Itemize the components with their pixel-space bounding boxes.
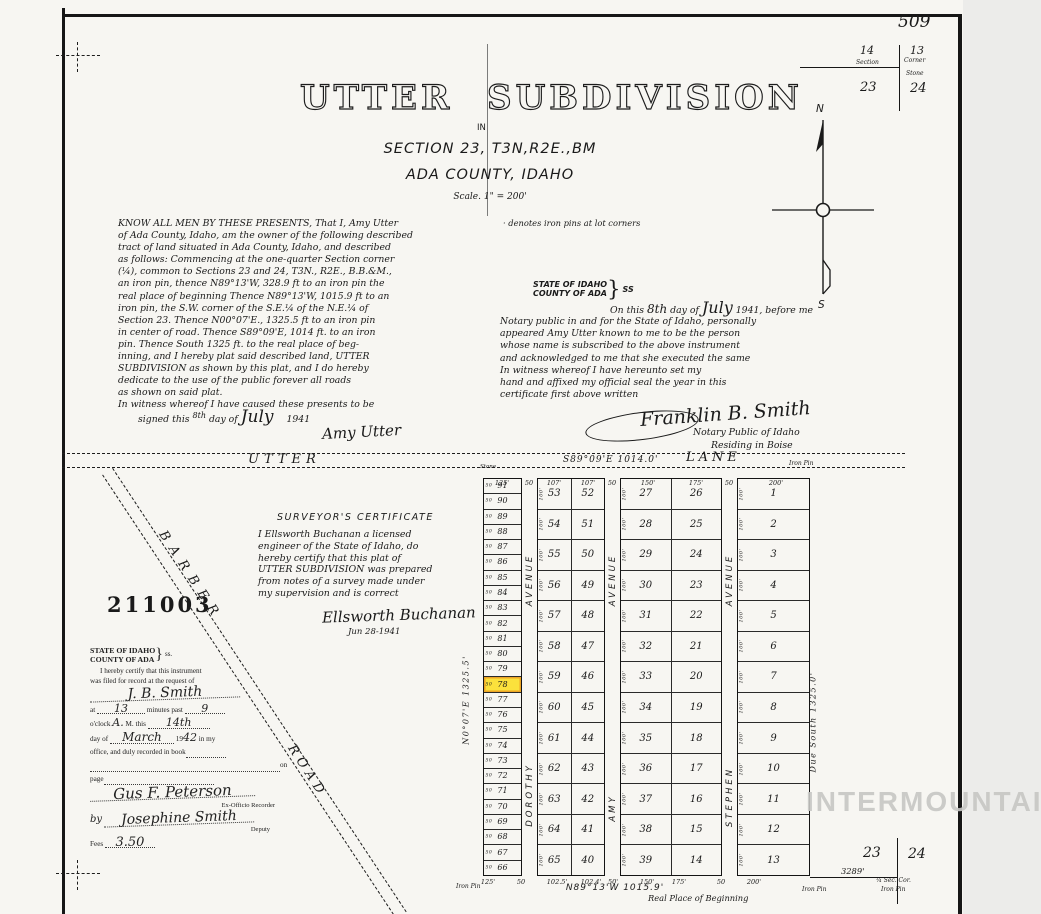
lot-number: 34 xyxy=(639,702,652,713)
lot-number: 18 xyxy=(690,733,703,744)
lot-row: 5076 xyxy=(484,708,521,723)
lot-number: 50 xyxy=(581,549,594,560)
lot-cell: 100'63 xyxy=(538,784,572,814)
lot-cell: 100'65 xyxy=(538,845,572,875)
lot-cell: 100'61 xyxy=(538,723,572,753)
lot-cell: 100'29 xyxy=(621,540,672,570)
lot-cell: 19 xyxy=(672,693,722,723)
lot-cell: 100'62 xyxy=(538,754,572,784)
lot-number: 56 xyxy=(548,580,561,591)
plat-grid: 5091509050895088508750865085508450835082… xyxy=(0,0,1041,914)
lot-cell: 100'56 xyxy=(538,571,572,601)
lot-depth-label: 100' xyxy=(738,487,744,500)
lot-row: 100'3518 xyxy=(621,723,721,754)
lot-cell: 100'31 xyxy=(621,601,672,631)
lot-number: 41 xyxy=(581,824,594,835)
lot-cell: 5082 xyxy=(484,616,521,630)
lot-number: 1 xyxy=(770,488,776,499)
lot-number: 51 xyxy=(581,519,594,530)
lot-number: 23 xyxy=(690,580,703,591)
block-b: 100'5352100'5451100'5550100'5649100'5748… xyxy=(537,478,605,876)
lot-cell: 100'37 xyxy=(621,784,672,814)
lot-row: 100'9 xyxy=(738,723,809,754)
avenue-name-stephen: STEPHEN xyxy=(725,767,735,827)
lot-row: 100'5451 xyxy=(538,510,604,541)
lot-cell: 100'9 xyxy=(738,723,809,753)
lot-cell: 5074 xyxy=(484,739,521,753)
lot-cell: 43 xyxy=(572,754,605,784)
lot-depth-label: 100' xyxy=(738,548,744,561)
lot-number: 63 xyxy=(548,794,561,805)
lot-number: 36 xyxy=(639,763,652,774)
lot-number: 35 xyxy=(639,733,652,744)
lot-cell: 50 xyxy=(572,540,605,570)
lot-row: 100'5748 xyxy=(538,601,604,632)
lot-row: 100'3023 xyxy=(621,571,721,602)
lot-number: 24 xyxy=(690,549,703,560)
lot-number: 76 xyxy=(497,711,507,719)
lot-row: 5089 xyxy=(484,510,521,525)
lot-cell: 100'8 xyxy=(738,693,809,723)
lot-depth-label: 100' xyxy=(538,487,544,500)
lot-number: 71 xyxy=(497,787,507,795)
lot-cell: 100'12 xyxy=(738,815,809,845)
lot-cell: 100'55 xyxy=(538,540,572,570)
lot-cell: 100'4 xyxy=(738,571,809,601)
lot-cell: 100'10 xyxy=(738,754,809,784)
lot-number: 11 xyxy=(767,794,780,805)
lot-depth-label: 100' xyxy=(621,487,627,500)
lot-cell: 20 xyxy=(672,662,722,692)
lot-number: 44 xyxy=(581,733,594,744)
lot-row: 100'4 xyxy=(738,571,809,602)
block-d: 100'1100'2100'3100'4100'5100'6100'7100'8… xyxy=(737,478,810,876)
lot-cell: 5071 xyxy=(484,784,521,798)
lot-cell: 5066 xyxy=(484,861,521,875)
lot-cell: 100'57 xyxy=(538,601,572,631)
lot-row: 5088 xyxy=(484,525,521,540)
lot-number: 80 xyxy=(497,650,507,658)
lot-number: 90 xyxy=(497,497,507,505)
lot-number: 52 xyxy=(581,488,594,499)
lot-cell: 5090 xyxy=(484,494,521,508)
lot-cell: 5079 xyxy=(484,662,521,676)
lot-depth-label: 50 xyxy=(486,682,493,687)
lot-depth-label: 100' xyxy=(538,670,544,683)
lot-number: 20 xyxy=(690,671,703,682)
lot-depth-label: 100' xyxy=(738,854,744,867)
lot-cell-highlighted: 5078 xyxy=(484,677,521,691)
lot-depth-label: 100' xyxy=(738,518,744,531)
lot-row: 100'3716 xyxy=(621,784,721,815)
lot-row: 5078 xyxy=(484,677,521,692)
lot-number: 17 xyxy=(690,763,703,774)
lot-number: 12 xyxy=(767,824,780,835)
lot-number: 33 xyxy=(639,671,652,682)
lot-depth-label: 100' xyxy=(538,579,544,592)
lot-row: 100'3122 xyxy=(621,601,721,632)
lot-cell: 41 xyxy=(572,815,605,845)
lot-depth-label: 100' xyxy=(621,670,627,683)
lot-row: 5085 xyxy=(484,571,521,586)
lot-depth-label: 100' xyxy=(738,701,744,714)
lot-number: 2 xyxy=(770,519,776,530)
lot-number: 48 xyxy=(581,610,594,621)
lot-depth-label: 50 xyxy=(486,835,493,840)
avenue-suffix-amy: AVENUE xyxy=(608,554,618,607)
lot-cell: 5077 xyxy=(484,693,521,707)
lot-number: 25 xyxy=(690,519,703,530)
lot-depth-label: 100' xyxy=(621,823,627,836)
lot-row: 100'10 xyxy=(738,754,809,785)
lot-depth-label: 100' xyxy=(621,518,627,531)
avenue-name-amy: AMY xyxy=(608,794,618,821)
lot-depth-label: 100' xyxy=(538,793,544,806)
lot-number: 77 xyxy=(497,696,507,704)
lot-row: 100'5 xyxy=(738,601,809,632)
lot-row: 5075 xyxy=(484,723,521,738)
lot-row: 100'2726 xyxy=(621,479,721,510)
lot-row: 5071 xyxy=(484,784,521,799)
section-number-24: 24 xyxy=(908,846,926,862)
lot-number: 58 xyxy=(548,641,561,652)
lot-row: 100'5550 xyxy=(538,540,604,571)
lot-row: 100'3617 xyxy=(621,754,721,785)
lot-depth-label: 100' xyxy=(538,854,544,867)
lot-number: 15 xyxy=(690,824,703,835)
lot-row: 5082 xyxy=(484,616,521,631)
lot-cell: 24 xyxy=(672,540,722,570)
lot-cell: 49 xyxy=(572,571,605,601)
lot-cell: 100'5 xyxy=(738,601,809,631)
lot-row: 100'3815 xyxy=(621,815,721,846)
lot-number: 27 xyxy=(639,488,652,499)
dimension-label: 150' xyxy=(641,479,655,487)
lot-cell: 100'58 xyxy=(538,632,572,662)
lot-row: 100'3914 xyxy=(621,845,721,875)
lot-row: 100'5946 xyxy=(538,662,604,693)
lot-cell: 100'36 xyxy=(621,754,672,784)
lot-row: 5069 xyxy=(484,815,521,830)
lot-row: 5068 xyxy=(484,830,521,845)
south-boundary-bearing: N89°13'W 1015.9' xyxy=(540,883,690,893)
lot-row: 100'8 xyxy=(738,693,809,724)
lot-depth-label: 100' xyxy=(621,854,627,867)
lot-number: 78 xyxy=(497,681,507,689)
lot-cell: 100'30 xyxy=(621,571,672,601)
lot-row: 5067 xyxy=(484,845,521,860)
lot-cell: 100'2 xyxy=(738,510,809,540)
lot-depth-label: 100' xyxy=(621,701,627,714)
lot-row: 5066 xyxy=(484,861,521,875)
lot-row: 100'5649 xyxy=(538,571,604,602)
lot-cell: 5087 xyxy=(484,540,521,554)
lot-number: 28 xyxy=(639,519,652,530)
lot-depth-label: 100' xyxy=(738,670,744,683)
lot-number: 6 xyxy=(770,641,776,652)
lot-depth-label: 50 xyxy=(486,850,493,855)
lot-depth-label: 100' xyxy=(738,823,744,836)
lot-number: 5 xyxy=(770,610,776,621)
lot-depth-label: 50 xyxy=(486,529,493,534)
lot-cell: 100'32 xyxy=(621,632,672,662)
east-boundary-bearing: Due South 1325.0' xyxy=(809,672,818,773)
lot-depth-label: 100' xyxy=(621,579,627,592)
lot-row: 100'6144 xyxy=(538,723,604,754)
lot-number: 30 xyxy=(639,580,652,591)
lot-number: 14 xyxy=(690,855,703,866)
lot-cell: 100'34 xyxy=(621,693,672,723)
lot-cell: 5067 xyxy=(484,845,521,859)
lot-cell: 44 xyxy=(572,723,605,753)
lot-depth-label: 100' xyxy=(738,640,744,653)
lot-number: 73 xyxy=(497,757,507,765)
lot-number: 83 xyxy=(497,604,507,612)
lot-cell: 5069 xyxy=(484,815,521,829)
lot-depth-label: 100' xyxy=(538,701,544,714)
lot-depth-label: 50 xyxy=(486,667,493,672)
lot-depth-label: 50 xyxy=(486,606,493,611)
lot-number: 70 xyxy=(497,803,507,811)
lot-depth-label: 100' xyxy=(738,762,744,775)
lot-number: 40 xyxy=(581,855,594,866)
lot-depth-label: 50 xyxy=(486,865,493,870)
lot-number: 47 xyxy=(581,641,594,652)
lot-depth-label: 100' xyxy=(621,609,627,622)
lot-number: 7 xyxy=(770,671,776,682)
lot-row: 100'2 xyxy=(738,510,809,541)
lot-depth-label: 50 xyxy=(486,804,493,809)
lot-row: 5083 xyxy=(484,601,521,616)
lot-number: 22 xyxy=(690,610,703,621)
lot-row: 100'6540 xyxy=(538,845,604,875)
lot-depth-label: 50 xyxy=(486,713,493,718)
lot-depth-label: 100' xyxy=(538,518,544,531)
lot-depth-label: 50 xyxy=(486,636,493,641)
lot-depth-label: 50 xyxy=(486,774,493,779)
lot-cell: 5075 xyxy=(484,723,521,737)
lot-number: 42 xyxy=(581,794,594,805)
lot-depth-label: 50 xyxy=(486,621,493,626)
lot-cell: 100'64 xyxy=(538,815,572,845)
lot-row: 5070 xyxy=(484,800,521,815)
lot-cell: 25 xyxy=(672,510,722,540)
lot-number: 79 xyxy=(497,665,507,673)
lot-cell: 5076 xyxy=(484,708,521,722)
dimension-label: 50 xyxy=(725,479,733,487)
lot-cell: 5085 xyxy=(484,571,521,585)
lot-number: 57 xyxy=(548,610,561,621)
dimension-label: 107' xyxy=(581,479,595,487)
lot-number: 59 xyxy=(548,671,561,682)
lot-number: 54 xyxy=(548,519,561,530)
lot-row: 100'3320 xyxy=(621,662,721,693)
lot-row: 100'2825 xyxy=(621,510,721,541)
lot-depth-label: 50 xyxy=(486,514,493,519)
lot-cell: 5088 xyxy=(484,525,521,539)
lot-number: 9 xyxy=(770,733,776,744)
lot-row: 100'5847 xyxy=(538,632,604,663)
lot-depth-label: 100' xyxy=(538,762,544,775)
lot-number: 87 xyxy=(497,543,507,551)
se-iron-pin-label: Iron Pin xyxy=(802,886,826,893)
lot-cell: 100'60 xyxy=(538,693,572,723)
lot-cell: 18 xyxy=(672,723,722,753)
lot-depth-label: 50 xyxy=(486,758,493,763)
lot-row: 100'6441 xyxy=(538,815,604,846)
lot-number: 8 xyxy=(770,702,776,713)
lot-cell: 5080 xyxy=(484,647,521,661)
lot-number: 81 xyxy=(497,635,507,643)
lot-cell: 21 xyxy=(672,632,722,662)
lot-number: 10 xyxy=(767,763,780,774)
lot-row: 100'3 xyxy=(738,540,809,571)
lot-number: 62 xyxy=(548,763,561,774)
lot-cell: 100'3 xyxy=(738,540,809,570)
lot-depth-label: 50 xyxy=(486,560,493,565)
plat-document-page: 509 14 13 Section Corner Stone 23 24 UTT… xyxy=(0,0,1041,914)
lot-number: 4 xyxy=(770,580,776,591)
dimension-label: 50 xyxy=(717,878,725,886)
lot-depth-label: 50 xyxy=(486,652,493,657)
lot-cell: 5072 xyxy=(484,769,521,783)
lot-cell: 100'13 xyxy=(738,845,809,875)
lot-cell: 5068 xyxy=(484,830,521,844)
real-place-of-beginning-label: Real Place of Beginning xyxy=(648,893,748,903)
lot-row: 5073 xyxy=(484,754,521,769)
lot-cell: 100'28 xyxy=(621,510,672,540)
avenue-suffix-dorothy: AVENUE xyxy=(525,554,535,607)
lot-cell: 42 xyxy=(572,784,605,814)
lot-number: 64 xyxy=(548,824,561,835)
lot-depth-label: 50 xyxy=(486,743,493,748)
lot-cell: 23 xyxy=(672,571,722,601)
lot-cell: 15 xyxy=(672,815,722,845)
lot-cell: 5086 xyxy=(484,555,521,569)
lot-number: 37 xyxy=(639,794,652,805)
lot-number: 39 xyxy=(639,855,652,866)
lot-depth-label: 50 xyxy=(486,789,493,794)
dimension-label: 200' xyxy=(747,878,761,886)
lot-cell: 100'39 xyxy=(621,845,672,875)
lot-cell: 100'33 xyxy=(621,662,672,692)
sw-iron-pin-label: Iron Pin xyxy=(456,883,480,890)
lot-depth-label: 50 xyxy=(486,575,493,580)
dimension-label: 175' xyxy=(689,479,703,487)
lot-number: 82 xyxy=(497,620,507,628)
lot-cell: 100'59 xyxy=(538,662,572,692)
lot-row: 100'6243 xyxy=(538,754,604,785)
lot-number: 67 xyxy=(497,849,507,857)
lot-depth-label: 100' xyxy=(621,548,627,561)
lot-depth-label: 50 xyxy=(486,590,493,595)
lot-cell: 45 xyxy=(572,693,605,723)
lot-number: 45 xyxy=(581,702,594,713)
lot-cell: 22 xyxy=(672,601,722,631)
lot-depth-label: 100' xyxy=(738,579,744,592)
lot-row: 5090 xyxy=(484,494,521,509)
lot-number: 85 xyxy=(497,574,507,582)
dimension-label: 50 xyxy=(525,479,533,487)
lot-depth-label: 50 xyxy=(486,697,493,702)
avenue-suffix-stephen: AVENUE xyxy=(725,554,735,607)
lot-number: 65 xyxy=(548,855,561,866)
lot-row: 5081 xyxy=(484,632,521,647)
lot-cell: 100'54 xyxy=(538,510,572,540)
lot-number: 84 xyxy=(497,589,507,597)
dimension-label: 107' xyxy=(547,479,561,487)
lot-row: 5072 xyxy=(484,769,521,784)
lot-number: 61 xyxy=(548,733,561,744)
lot-depth-label: 100' xyxy=(621,762,627,775)
lot-cell: 100'6 xyxy=(738,632,809,662)
lot-number: 26 xyxy=(690,488,703,499)
west-boundary-bearing: N0°07'E 1325.5' xyxy=(462,655,471,745)
lot-row: 100'12 xyxy=(738,815,809,846)
lot-number: 72 xyxy=(497,772,507,780)
lot-number: 3 xyxy=(770,549,776,560)
lot-row: 5086 xyxy=(484,555,521,570)
lot-depth-label: 100' xyxy=(738,793,744,806)
lot-depth-label: 50 xyxy=(486,819,493,824)
dimension-label: 50 xyxy=(608,479,616,487)
lot-cell: 51 xyxy=(572,510,605,540)
lot-number: 19 xyxy=(690,702,703,713)
lot-row: 5077 xyxy=(484,693,521,708)
lot-number: 66 xyxy=(497,864,507,872)
lot-cell: 47 xyxy=(572,632,605,662)
lot-cell: 5070 xyxy=(484,800,521,814)
lot-cell: 5081 xyxy=(484,632,521,646)
lot-cell: 14 xyxy=(672,845,722,875)
lot-row: 5074 xyxy=(484,739,521,754)
lot-number: 60 xyxy=(548,702,561,713)
lot-number: 38 xyxy=(639,824,652,835)
lot-cell: 46 xyxy=(572,662,605,692)
lot-row: 100'7 xyxy=(738,662,809,693)
lot-number: 55 xyxy=(548,549,561,560)
lot-cell: 100'38 xyxy=(621,815,672,845)
lot-number: 16 xyxy=(690,794,703,805)
lot-depth-label: 100' xyxy=(621,640,627,653)
lot-row: 5087 xyxy=(484,540,521,555)
section-number-23: 23 xyxy=(863,845,881,861)
block-c: 100'2726100'2825100'2924100'3023100'3122… xyxy=(620,478,722,876)
lot-number: 43 xyxy=(581,763,594,774)
lot-depth-label: 100' xyxy=(621,793,627,806)
lot-cell: 5089 xyxy=(484,510,521,524)
lot-cell: 5084 xyxy=(484,586,521,600)
intermountain-watermark: INTERMOUNTAIN xyxy=(806,786,1041,818)
lot-row: 100'13 xyxy=(738,845,809,875)
lot-number: 68 xyxy=(497,833,507,841)
lot-depth-label: 100' xyxy=(621,732,627,745)
tie-distance: 3289' xyxy=(841,866,864,876)
lot-cell: 100'7 xyxy=(738,662,809,692)
lot-number: 75 xyxy=(497,726,507,734)
lot-row: 5079 xyxy=(484,662,521,677)
lot-depth-label: 100' xyxy=(538,609,544,622)
lot-number: 89 xyxy=(497,513,507,521)
corner-iron-pin-label: Iron Pin xyxy=(881,886,905,893)
lot-number: 53 xyxy=(548,488,561,499)
lot-depth-label: 50 xyxy=(486,728,493,733)
lot-depth-label: 100' xyxy=(738,732,744,745)
lot-cell: 5073 xyxy=(484,754,521,768)
lot-cell: 5083 xyxy=(484,601,521,615)
lot-row: 5084 xyxy=(484,586,521,601)
lot-number: 31 xyxy=(639,610,652,621)
